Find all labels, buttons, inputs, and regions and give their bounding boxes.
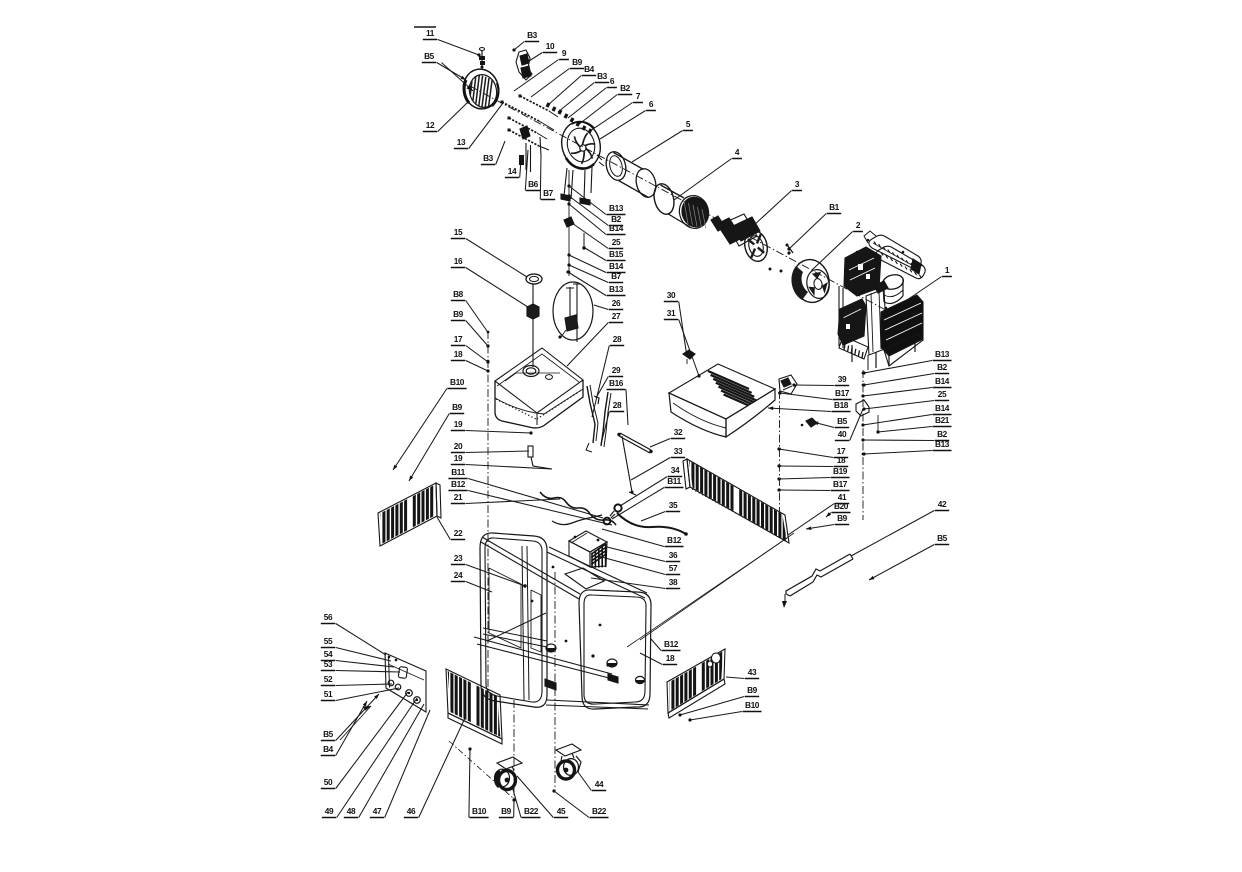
svg-text:44: 44 bbox=[595, 779, 604, 789]
svg-text:23: 23 bbox=[454, 553, 463, 563]
svg-text:34: 34 bbox=[671, 465, 680, 475]
svg-text:B3: B3 bbox=[527, 30, 538, 40]
svg-text:B17: B17 bbox=[835, 388, 850, 398]
svg-text:B16: B16 bbox=[609, 378, 624, 388]
svg-text:B10: B10 bbox=[450, 377, 465, 387]
svg-text:B19: B19 bbox=[833, 466, 848, 476]
svg-text:B12: B12 bbox=[667, 535, 682, 545]
svg-text:B5: B5 bbox=[323, 729, 334, 739]
svg-text:B15: B15 bbox=[609, 249, 624, 259]
svg-text:17: 17 bbox=[454, 334, 463, 344]
svg-text:B22: B22 bbox=[524, 806, 539, 816]
svg-text:B3: B3 bbox=[483, 153, 494, 163]
svg-text:50: 50 bbox=[324, 777, 333, 787]
svg-text:B1: B1 bbox=[829, 202, 840, 212]
svg-text:52: 52 bbox=[324, 674, 333, 684]
svg-text:19: 19 bbox=[454, 419, 463, 429]
svg-text:B13: B13 bbox=[935, 439, 950, 449]
svg-text:27: 27 bbox=[612, 311, 621, 321]
svg-text:B9: B9 bbox=[572, 57, 583, 67]
svg-text:B12: B12 bbox=[664, 639, 679, 649]
svg-text:57: 57 bbox=[669, 563, 678, 573]
svg-text:B7: B7 bbox=[543, 188, 554, 198]
svg-text:31: 31 bbox=[667, 308, 676, 318]
svg-text:51: 51 bbox=[324, 689, 333, 699]
svg-text:B2: B2 bbox=[620, 83, 631, 93]
svg-text:B3: B3 bbox=[597, 71, 608, 81]
svg-text:B11: B11 bbox=[451, 467, 465, 477]
svg-text:19: 19 bbox=[454, 453, 463, 463]
svg-text:B22: B22 bbox=[592, 806, 607, 816]
svg-text:45: 45 bbox=[557, 806, 566, 816]
svg-text:B5: B5 bbox=[837, 416, 848, 426]
svg-text:36: 36 bbox=[669, 550, 678, 560]
svg-text:18: 18 bbox=[666, 653, 675, 663]
svg-text:35: 35 bbox=[669, 500, 678, 510]
svg-text:42: 42 bbox=[938, 499, 947, 509]
svg-text:18: 18 bbox=[837, 455, 846, 465]
svg-text:B13: B13 bbox=[935, 349, 950, 359]
svg-text:28: 28 bbox=[613, 400, 622, 410]
svg-text:B7: B7 bbox=[611, 271, 622, 281]
svg-text:B2: B2 bbox=[937, 429, 948, 439]
svg-text:40: 40 bbox=[838, 429, 847, 439]
svg-text:B14: B14 bbox=[935, 403, 950, 413]
svg-text:16: 16 bbox=[454, 256, 463, 266]
svg-text:B14: B14 bbox=[935, 376, 950, 386]
svg-text:11: 11 bbox=[426, 28, 435, 38]
svg-text:48: 48 bbox=[347, 806, 356, 816]
svg-text:15: 15 bbox=[454, 227, 463, 237]
svg-text:B10: B10 bbox=[472, 806, 487, 816]
svg-text:54: 54 bbox=[324, 649, 333, 659]
svg-text:18: 18 bbox=[454, 349, 463, 359]
svg-text:47: 47 bbox=[373, 806, 382, 816]
svg-text:B9: B9 bbox=[747, 685, 758, 695]
svg-text:49: 49 bbox=[325, 806, 334, 816]
svg-text:B6: B6 bbox=[528, 179, 539, 189]
svg-text:B4: B4 bbox=[323, 744, 334, 754]
svg-text:B9: B9 bbox=[452, 402, 463, 412]
svg-text:43: 43 bbox=[748, 667, 757, 677]
svg-text:B14: B14 bbox=[609, 261, 624, 271]
svg-text:B9: B9 bbox=[837, 513, 848, 523]
svg-text:B13: B13 bbox=[609, 203, 624, 213]
svg-text:21: 21 bbox=[454, 492, 463, 502]
svg-text:B8: B8 bbox=[453, 289, 464, 299]
svg-text:20: 20 bbox=[454, 441, 463, 451]
svg-text:30: 30 bbox=[667, 290, 676, 300]
svg-text:10: 10 bbox=[546, 41, 555, 51]
svg-text:13: 13 bbox=[457, 137, 466, 147]
svg-text:55: 55 bbox=[324, 636, 333, 646]
svg-text:B5: B5 bbox=[424, 51, 435, 61]
svg-text:25: 25 bbox=[612, 237, 621, 247]
svg-text:32: 32 bbox=[674, 427, 683, 437]
svg-text:B9: B9 bbox=[501, 806, 512, 816]
svg-text:B20: B20 bbox=[834, 501, 849, 511]
svg-text:B2: B2 bbox=[937, 362, 948, 372]
svg-text:B21: B21 bbox=[935, 415, 950, 425]
svg-text:46: 46 bbox=[407, 806, 416, 816]
svg-text:14: 14 bbox=[508, 166, 517, 176]
svg-text:53: 53 bbox=[324, 659, 333, 669]
svg-text:56: 56 bbox=[324, 612, 333, 622]
svg-text:28: 28 bbox=[613, 334, 622, 344]
svg-text:B5: B5 bbox=[937, 533, 948, 543]
svg-text:B14: B14 bbox=[609, 223, 624, 233]
svg-text:39: 39 bbox=[838, 374, 847, 384]
svg-text:12: 12 bbox=[426, 120, 435, 130]
svg-text:B4: B4 bbox=[584, 64, 595, 74]
svg-text:24: 24 bbox=[454, 570, 463, 580]
svg-text:B12: B12 bbox=[451, 479, 466, 489]
svg-text:B10: B10 bbox=[745, 700, 760, 710]
svg-text:25: 25 bbox=[938, 389, 947, 399]
svg-text:B17: B17 bbox=[833, 479, 848, 489]
svg-text:29: 29 bbox=[612, 365, 621, 375]
svg-text:26: 26 bbox=[612, 298, 621, 308]
svg-text:22: 22 bbox=[454, 528, 463, 538]
svg-text:B13: B13 bbox=[609, 284, 624, 294]
svg-text:38: 38 bbox=[669, 577, 678, 587]
svg-text:B18: B18 bbox=[834, 400, 849, 410]
svg-text:B9: B9 bbox=[453, 309, 464, 319]
svg-text:B11: B11 bbox=[667, 476, 681, 486]
svg-text:33: 33 bbox=[674, 446, 683, 456]
